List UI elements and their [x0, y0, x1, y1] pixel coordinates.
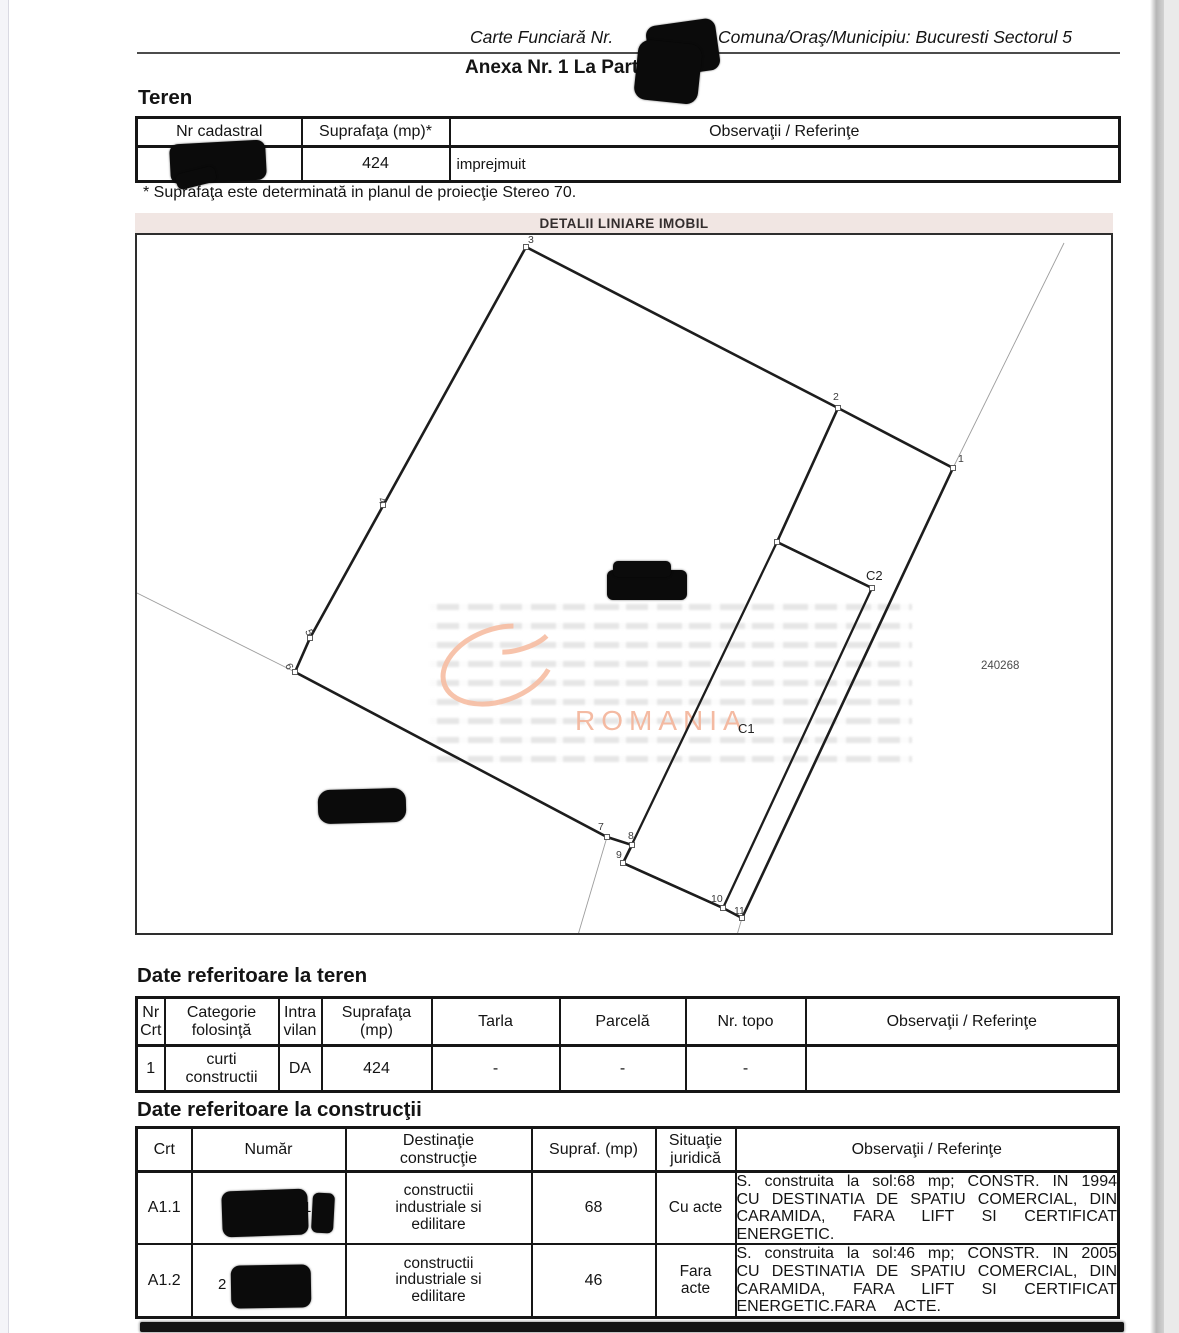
- svg-text:C2: C2: [866, 568, 883, 583]
- cell-categorie: curti constructii: [165, 1046, 279, 1092]
- col-tarla: Tarla: [432, 998, 560, 1046]
- redaction-plan-number-1b: [613, 561, 671, 577]
- col-situatie: Situaţie juridică: [656, 1128, 736, 1172]
- cell-crt-a12: A1.2: [137, 1244, 192, 1317]
- col-nr-topo: Nr. topo: [686, 998, 806, 1046]
- col-parcela: Parcelă: [560, 998, 686, 1046]
- stereo70-footnote: * Suprafaţa este determinată in planul d…: [143, 184, 576, 202]
- carte-funciara-label: Carte Funciară Nr.: [470, 27, 613, 48]
- comuna-oras-label: Comuna/Oraş/Municipiu: Bucuresti Sectoru…: [718, 27, 1072, 48]
- col-observatii: Observaţii / Referinţe: [806, 998, 1119, 1046]
- teren-col-suprafata: Suprafaţa (mp)*: [302, 118, 450, 147]
- cell-tarla: -: [432, 1046, 560, 1092]
- cell-parcela: -: [560, 1046, 686, 1092]
- col-supraf: Supraf. (mp): [532, 1128, 656, 1172]
- cell-destinatie-a12: constructii industriale si edilitare: [346, 1244, 532, 1317]
- bottom-scan-bar: [140, 1322, 1124, 1332]
- cell-situatie-a12: Fara acte: [656, 1244, 736, 1317]
- svg-text:7: 7: [598, 821, 604, 833]
- cell-nr-topo: -: [686, 1046, 806, 1092]
- col-suprafata-mp: Suprafaţa (mp): [322, 998, 432, 1046]
- cell-suprafata-mp: 424: [322, 1046, 432, 1092]
- teren-heading: Teren: [138, 86, 192, 110]
- col-numar: Număr: [192, 1128, 346, 1172]
- col-categorie: Categorie folosinţă: [165, 998, 279, 1046]
- col-intravilan: Intra vilan: [279, 998, 322, 1046]
- cell-intravilan: DA: [279, 1046, 322, 1092]
- cell-supraf-a11: 68: [532, 1172, 656, 1245]
- svg-text:C1: C1: [738, 721, 755, 736]
- svg-text:3: 3: [528, 234, 534, 246]
- constructii-heading: Date referitoare la construcţii: [137, 1098, 422, 1122]
- cell-nr-crt: 1: [137, 1046, 165, 1092]
- cell-observatii: [806, 1046, 1119, 1092]
- col-nr-crt: Nr Crt: [137, 998, 165, 1046]
- cell-obs-a12: S. construita la sol:46 mp; CONSTR. IN 2…: [736, 1244, 1119, 1317]
- col-crt: Crt: [137, 1128, 192, 1172]
- col-destinatie: Destinaţie construcţie: [346, 1128, 532, 1172]
- scanned-document: { "header": { "carte_funciara_label": "C…: [0, 0, 1179, 1333]
- svg-text:9: 9: [616, 849, 622, 861]
- redaction-numar-a11: [221, 1189, 309, 1238]
- peek-digit-a12: 2: [218, 1276, 226, 1293]
- cell-obs-a11: S. construita la sol:68 mp; CONSTR. IN 1…: [736, 1172, 1119, 1245]
- teren-table: Nr cadastral Suprafaţa (mp)* Observaţii …: [135, 116, 1121, 183]
- svg-text:240268: 240268: [981, 660, 1019, 672]
- svg-text:1: 1: [958, 453, 964, 465]
- anexa-title: Anexa Nr. 1 La Partea I: [465, 57, 785, 79]
- plan-title: DETALII LINIARE IMOBIL: [539, 216, 708, 231]
- svg-text:ROMANIA: ROMANIA: [575, 705, 748, 736]
- teren-cell-observatii: imprejmuit: [450, 147, 1120, 182]
- redaction-cf-number-2: [633, 39, 703, 105]
- page-left-edge: [0, 0, 9, 1333]
- cell-destinatie-a11: constructii industriale si edilitare: [346, 1172, 532, 1245]
- teren-details-heading: Date referitoare la teren: [137, 964, 367, 988]
- svg-text:8: 8: [628, 830, 634, 842]
- cell-supraf-a12: 46: [532, 1244, 656, 1317]
- svg-text:2: 2: [833, 391, 839, 403]
- teren-col-observatii: Observaţii / Referinţe: [450, 118, 1120, 147]
- col-obs-ref: Observaţii / Referinţe: [736, 1128, 1119, 1172]
- teren-details-table: Nr Crt Categorie folosinţă Intra vilan S…: [135, 996, 1120, 1093]
- cell-crt-a11: A1.1: [137, 1172, 192, 1245]
- header-rule: [137, 52, 1120, 54]
- svg-text:10: 10: [711, 893, 723, 905]
- teren-cell-suprafata: 424: [302, 147, 450, 182]
- redaction-plan-number-2: [318, 788, 407, 824]
- redaction-numar-a12: [231, 1264, 312, 1308]
- svg-text:11: 11: [734, 905, 745, 917]
- cell-situatie-a11: Cu acte: [656, 1172, 736, 1245]
- page-right-margin: [1164, 0, 1179, 1333]
- page-right-edge-shadow: [1150, 0, 1164, 1333]
- plan-title-bar: DETALII LINIARE IMOBIL: [135, 213, 1113, 233]
- redaction-numar-a11b: [311, 1192, 335, 1233]
